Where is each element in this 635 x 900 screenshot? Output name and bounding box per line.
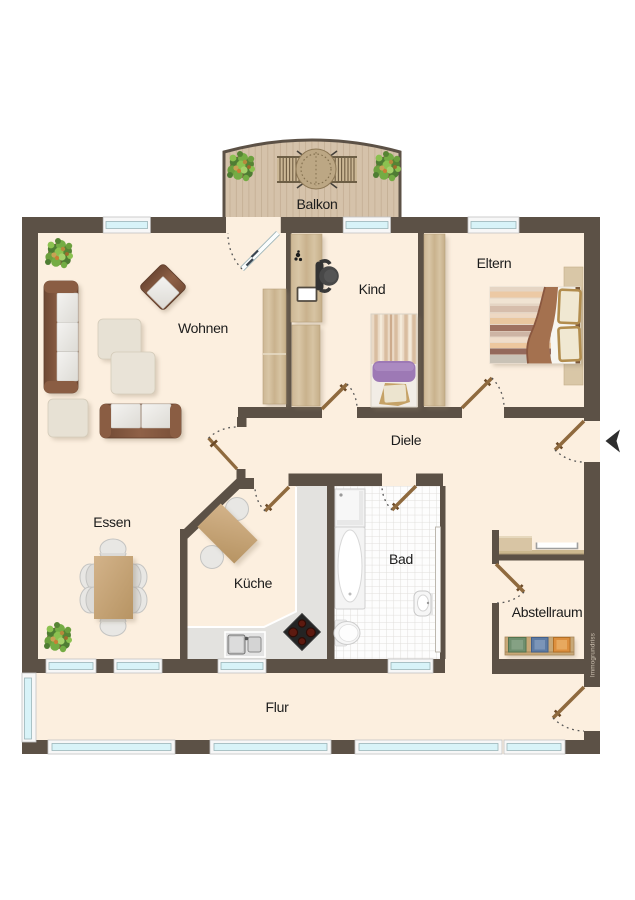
svg-text:Bad: Bad <box>389 551 413 567</box>
svg-text:Kind: Kind <box>359 281 386 297</box>
svg-text:Immogrundriss: Immogrundriss <box>590 633 597 677</box>
svg-text:Küche: Küche <box>234 575 273 591</box>
svg-text:Wohnen: Wohnen <box>178 320 228 336</box>
svg-text:Diele: Diele <box>391 432 422 448</box>
svg-text:Flur: Flur <box>266 699 290 715</box>
svg-text:Essen: Essen <box>93 514 130 530</box>
svg-text:Abstellraum: Abstellraum <box>512 604 583 620</box>
svg-text:Eltern: Eltern <box>477 255 512 271</box>
svg-text:Balkon: Balkon <box>296 196 337 212</box>
